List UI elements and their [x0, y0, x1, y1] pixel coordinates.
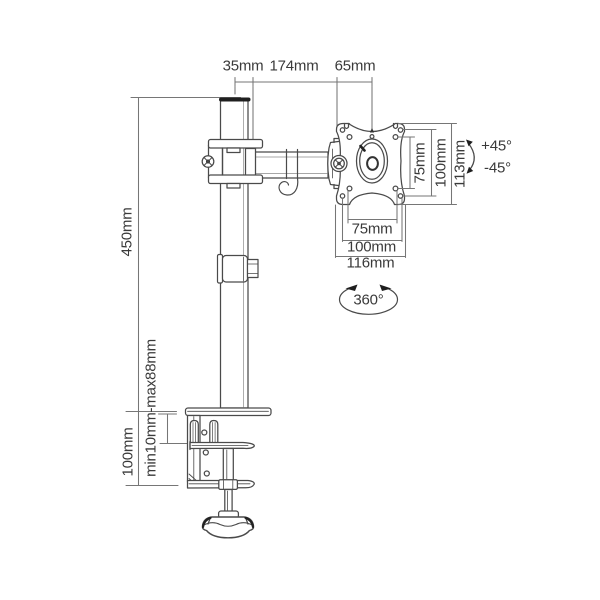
dim-pole-diameter: 35mm	[223, 59, 264, 74]
dim-pole-height: 450mm	[120, 207, 135, 256]
dim-vesa-horizontal-total: 116mm	[347, 255, 395, 270]
label-swivel: 360°	[353, 293, 383, 308]
dim-clamp-height: 100mm	[120, 427, 135, 476]
dim-vesa-horizontal-outer: 100mm	[347, 240, 396, 255]
dim-arm-length: 174mm	[269, 59, 318, 74]
arm-tube	[250, 152, 328, 178]
clamp-middle-pad	[190, 442, 254, 450]
dim-vesa-vertical-outer: 100mm	[433, 138, 448, 187]
desk-clamp	[186, 408, 272, 538]
vesa-center-boss	[357, 139, 388, 183]
dim-desk-thickness-range: min10mm-max88mm	[143, 339, 158, 477]
tilt-pivot-screw-icon	[331, 156, 347, 172]
clamp-side-screw-icon	[202, 156, 214, 168]
label-tilt-up: +45°	[481, 139, 512, 154]
dim-vesa-horizontal-inner: 75mm	[352, 221, 393, 236]
cable-clip-pole	[218, 255, 259, 284]
label-tilt-down: -45°	[484, 160, 511, 175]
clamp-knob	[202, 511, 253, 538]
dim-vesa-vertical-inner: 75mm	[412, 142, 427, 183]
technical-drawing-monitor-desk-mount: 35mm 174mm 65mm 450mm 100mm min10mm-max8…	[0, 0, 600, 600]
drawing-canvas	[0, 0, 600, 600]
dim-vesa-offset: 65mm	[335, 59, 376, 74]
dim-vesa-vertical-total: 113mm	[452, 140, 467, 188]
vesa-plate	[331, 124, 405, 205]
